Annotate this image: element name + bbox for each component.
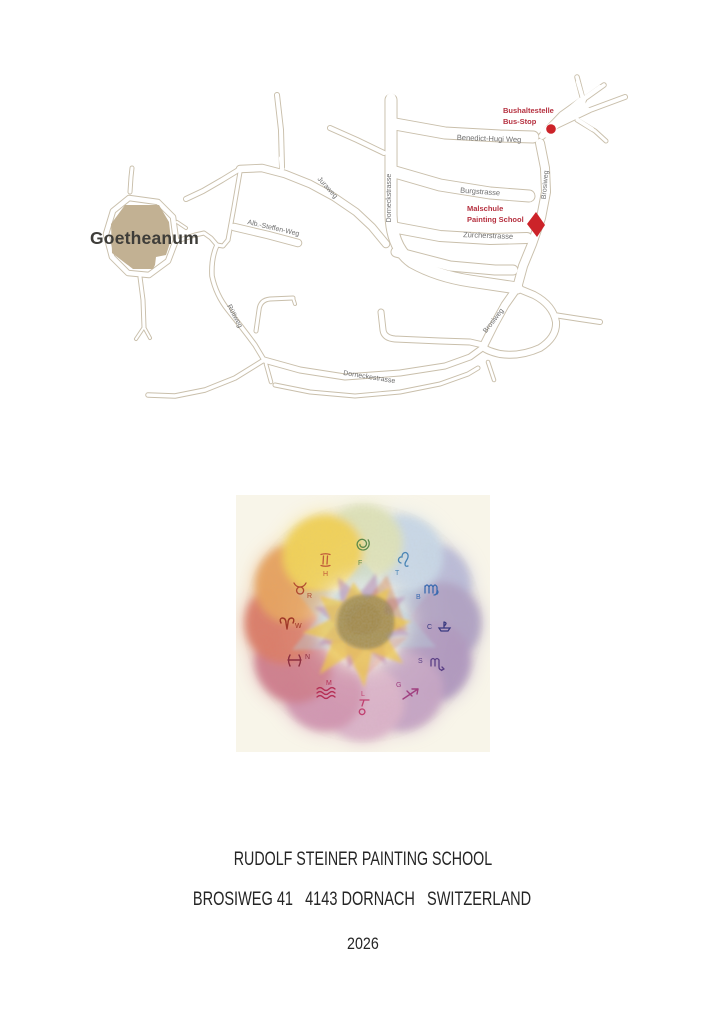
svg-text:C: C [427, 624, 432, 631]
svg-text:N: N [305, 654, 310, 661]
svg-text:R: R [307, 593, 312, 600]
svg-text:Bushaltestelle: Bushaltestelle [503, 106, 554, 115]
svg-text:M: M [326, 680, 332, 687]
svg-text:Zürcherstrasse: Zürcherstrasse [463, 230, 513, 241]
svg-text:Malschule: Malschule [467, 204, 503, 213]
svg-text:T: T [395, 570, 400, 577]
svg-text:Rütiweg: Rütiweg [225, 303, 243, 329]
svg-text:H: H [323, 571, 328, 578]
svg-text:Dorneckstrasse: Dorneckstrasse [386, 174, 393, 223]
svg-text:Goetheanum: Goetheanum [90, 228, 199, 248]
svg-text:B: B [416, 594, 421, 601]
svg-text:Bus-Stop: Bus-Stop [503, 117, 537, 126]
svg-text:W: W [295, 623, 302, 630]
svg-text:S: S [418, 658, 423, 665]
svg-text:L: L [361, 691, 365, 698]
svg-text:G: G [396, 682, 401, 689]
svg-text:Painting School: Painting School [467, 215, 524, 224]
svg-text:Benedict-Hugi Weg: Benedict-Hugi Weg [457, 133, 522, 144]
svg-text:F: F [358, 560, 362, 567]
